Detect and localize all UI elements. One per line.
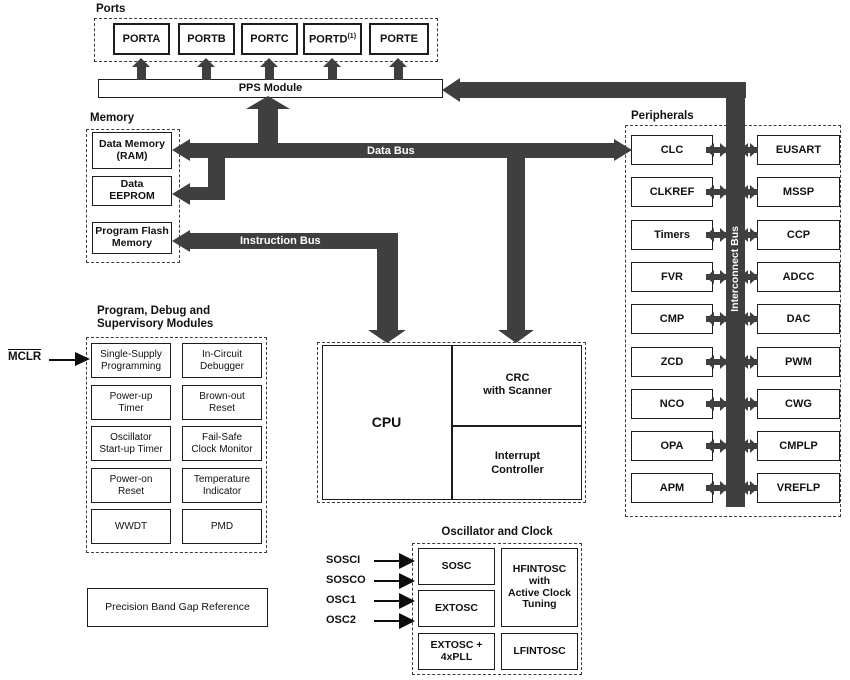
adcc-label: ADCC [783,271,815,283]
sosci-arrow-right-icon [399,553,415,569]
apm-label: APM [660,482,684,494]
data-bus-arrow-right-icon [614,139,632,161]
cpu-vertical-divider [451,345,453,500]
sosc-box: SOSC [418,548,495,585]
extosc-box: EXTOSC [418,590,495,627]
box-label-line: Temperature [194,474,250,485]
porta-box: PORTA [113,23,170,55]
bus-connector-double-arrow-icon [706,270,728,284]
single-supply-programming-box: Single-Supply Programming [91,343,171,378]
bus-connector-double-arrow-icon [740,397,758,411]
port-arrow-shaft [394,66,403,80]
ccp-label: CCP [787,229,810,241]
portb-box: PORTB [178,23,235,55]
cpu-horizontal-divider [451,425,582,427]
temperature-indicator-box: Temperature Indicator [182,468,262,503]
clkref-label: CLKREF [650,186,695,198]
lfintosc-label: LFINTOSC [513,646,565,658]
pps-data-bus-connector [258,108,278,144]
ports-section-label: Ports [96,3,125,15]
hfintosc-label-line: with [529,576,550,588]
fvr-label: FVR [661,271,683,283]
box-label-line: Reset [209,403,235,414]
port-arrow-shaft [202,66,211,80]
bus-connector-double-arrow-icon [740,439,758,453]
timers-label: Timers [654,229,690,241]
zcd-box: ZCD [631,347,713,377]
hfintosc-label-line: HFINTOSC [513,564,566,576]
bandgap-label: Precision Band Gap Reference [105,602,250,614]
bus-connector-double-arrow-icon [706,143,728,157]
bus-connector-double-arrow-icon [740,312,758,326]
crc-label-line: CRC [506,372,530,385]
cmplp-box: CMPLP [757,431,840,461]
cpu-label: CPU [372,414,402,431]
wwdt-box: WWDT [91,509,171,544]
osc1-arrow-line [374,600,400,602]
lfintosc-box: LFINTOSC [501,633,578,670]
bus-connector-double-arrow-icon [706,439,728,453]
box-label-line: WWDT [115,521,147,532]
bus-connector-double-arrow-icon [740,185,758,199]
nco-label: NCO [660,398,684,410]
oscillator-start-up-timer-box: Oscillator Start-up Timer [91,426,171,461]
bus-connector-double-arrow-icon [740,355,758,369]
eusart-label: EUSART [776,144,821,156]
port-arrow-up-icon [132,58,150,67]
power-up-timer-box: Power-up Timer [91,385,171,420]
port-arrow-shaft [137,66,146,80]
interrupt-label-line: Controller [491,464,544,477]
bus-connector-double-arrow-icon [740,270,758,284]
crc-label-line: with Scanner [483,385,551,398]
bus-connector-double-arrow-icon [706,397,728,411]
sosco-arrow-right-icon [399,573,415,589]
bus-connector-double-arrow-icon [706,355,728,369]
interrupt-label-line: Interrupt [495,450,540,463]
dac-box: DAC [757,304,840,334]
box-label-line: PMD [211,521,233,532]
cmp-box: CMP [631,304,713,334]
porta-label: PORTA [123,33,161,45]
portc-label: PORTC [250,33,289,45]
instruction-bus-label: Instruction Bus [240,235,321,247]
data-eeprom-box: Data EEPROM [92,176,172,206]
interrupt-controller-cell: Interrupt Controller [453,427,582,500]
port-arrow-up-icon [389,58,407,67]
opa-box: OPA [631,431,713,461]
extosc-label: EXTOSC [435,603,478,615]
nco-box: NCO [631,389,713,419]
box-label-line: Indicator [203,486,241,497]
data-bus-cpu-drop [507,157,525,331]
extpll-label-line: EXTOSC + [430,640,482,652]
box-label-line: Reset [118,486,144,497]
hfintosc-box: HFINTOSC with Active Clock Tuning [501,548,578,627]
box-label-line: Clock Monitor [191,444,252,455]
bus-connector-double-arrow-icon [740,228,758,242]
portd-box: PORTD(1) [303,23,362,55]
mclr-text: MCLR [8,349,41,363]
oscillator-section-label: Oscillator and Clock [412,526,582,538]
eeprom-arrow-left-icon [172,183,190,205]
zcd-label: ZCD [661,356,684,368]
ccp-box: CCP [757,220,840,250]
box-label-line: Programming [101,361,161,372]
opa-label: OPA [660,440,683,452]
pps-arrow-left-icon [442,78,460,102]
porte-label: PORTE [380,33,418,45]
power-on-reset-box: Power-on Reset [91,468,171,503]
peripherals-section-label: Peripherals [631,110,694,122]
box-label-line: Single-Supply [100,349,162,360]
clc-box: CLC [631,135,713,165]
fvr-box: FVR [631,262,713,292]
box-label-line: Power-up [110,391,153,402]
eeprom-branch-vertical [208,157,225,188]
osc1-pin-label: OSC1 [326,594,356,606]
box-label-line: Power-on [110,474,153,485]
brown-out-reset-box: Brown-out Reset [182,385,262,420]
osc2-arrow-line [374,620,400,622]
fail-safe-clock-monitor-box: Fail-Safe Clock Monitor [182,426,262,461]
pwm-box: PWM [757,347,840,377]
eeprom-label-line: EEPROM [109,191,155,203]
timers-box: Timers [631,220,713,250]
clkref-box: CLKREF [631,177,713,207]
pmd-box: PMD [182,509,262,544]
port-arrow-up-icon [323,58,341,67]
hfintosc-label-line: Tuning [522,599,556,611]
vreflp-label: VREFLP [777,482,820,494]
pps-arrow-up-icon [246,96,290,109]
cwg-label: CWG [785,398,812,410]
clc-label: CLC [661,144,684,156]
port-arrow-shaft [265,66,274,80]
instruction-bus-arrow-left-icon [172,230,190,252]
eusart-box: EUSART [757,135,840,165]
osc1-arrow-right-icon [399,593,415,609]
eeprom-branch-horizontal [189,187,225,200]
portc-box: PORTC [241,23,298,55]
bus-connector-double-arrow-icon [706,312,728,326]
portb-label: PORTB [187,33,226,45]
apm-box: APM [631,473,713,503]
box-label-line: In-Circuit [202,349,242,360]
sosci-arrow-line [374,560,400,562]
box-label-line: Debugger [200,361,244,372]
dac-label: DAC [787,313,811,325]
bus-connector-double-arrow-icon [706,481,728,495]
port-arrow-up-icon [260,58,278,67]
adcc-box: ADCC [757,262,840,292]
data-bus-label: Data Bus [367,145,415,157]
pwm-label: PWM [785,356,812,368]
precision-band-gap-reference-box: Precision Band Gap Reference [87,588,268,627]
interconnect-to-pps-bar [460,82,746,98]
box-label-line: Oscillator [110,432,152,443]
mssp-box: MSSP [757,177,840,207]
mclr-pin-label: MCLR [8,351,41,363]
extpll-label-line: 4xPLL [441,652,473,664]
sosco-pin-label: SOSCO [326,574,366,586]
data-bus-arrow-left-icon [172,139,190,161]
sosci-pin-label: SOSCI [326,554,360,566]
portd-footnote: (1) [347,33,356,40]
portd-text: PORTD [309,33,348,45]
sosc-label: SOSC [442,561,472,573]
box-label-line: Brown-out [199,391,245,402]
mclr-arrow-right-icon [75,352,90,366]
flash-label-line: Memory [112,238,152,250]
cmplp-label: CMPLP [779,440,818,452]
cpu-cell: CPU [322,345,451,500]
program-flash-memory-box: Program Flash Memory [92,222,172,254]
pps-module-label: PPS Module [239,82,303,94]
mssp-label: MSSP [783,186,814,198]
port-arrow-shaft [328,66,337,80]
cwg-box: CWG [757,389,840,419]
instruction-bus-cpu-drop [377,247,398,331]
in-circuit-debugger-box: In-Circuit Debugger [182,343,262,378]
supervisory-title-line1: Program, Debug and [97,305,210,317]
box-label-line: Start-up Timer [99,444,162,455]
data-bus-arrow-down-icon [498,330,534,343]
ram-label-line: Data Memory [99,139,165,151]
box-label-line: Fail-Safe [202,432,242,443]
cmp-label: CMP [660,313,684,325]
porte-box: PORTE [369,23,429,55]
portd-label: PORTD(1) [309,33,356,46]
memory-section-label: Memory [90,112,134,124]
ram-label-line: (RAM) [117,151,148,163]
vreflp-box: VREFLP [757,473,840,503]
extosc-4xpll-box: EXTOSC + 4xPLL [418,633,495,670]
data-memory-ram-box: Data Memory (RAM) [92,132,172,169]
bus-connector-double-arrow-icon [706,185,728,199]
osc2-pin-label: OSC2 [326,614,356,626]
bus-connector-double-arrow-icon [706,228,728,242]
sosco-arrow-line [374,580,400,582]
bus-connector-double-arrow-icon [740,481,758,495]
port-arrow-up-icon [197,58,215,67]
crc-cell: CRC with Scanner [453,345,582,425]
block-diagram: Ports PORTA PORTB PORTC PORTD(1) PORTE P… [0,0,850,680]
instruction-bus-arrow-down-icon [368,330,406,343]
bus-connector-double-arrow-icon [740,143,758,157]
mclr-arrow-line [49,359,75,361]
osc2-arrow-right-icon [399,613,415,629]
box-label-line: Timer [118,403,143,414]
supervisory-title-line2: Supervisory Modules [97,318,213,330]
